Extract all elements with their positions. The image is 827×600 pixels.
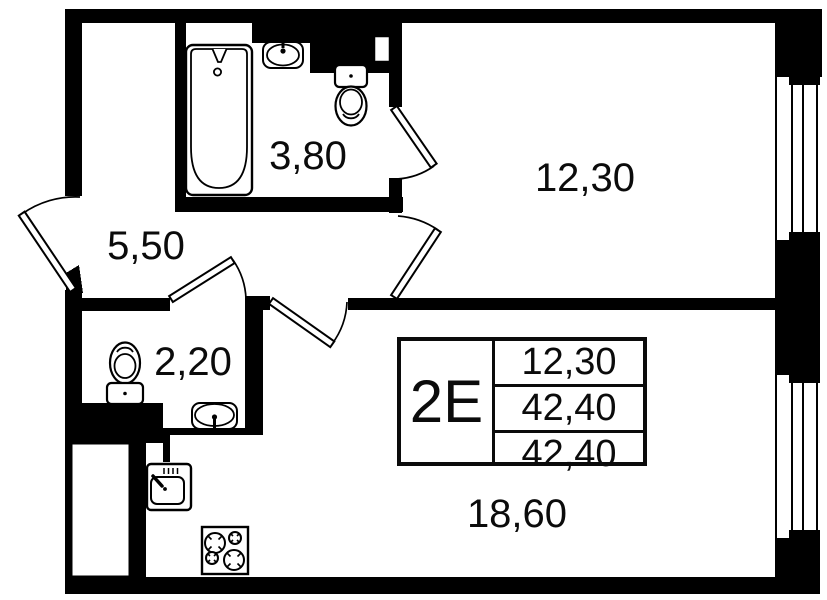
floor-plan-drawing [0, 0, 827, 600]
kitchen-sink-icon [147, 464, 191, 510]
unit-info-table: 2E 12,30 42,40 42,40 [397, 337, 647, 466]
kitchen-shaft-bar [65, 403, 163, 443]
bathroom-right-stub [389, 178, 402, 213]
bedroom-door [391, 216, 441, 299]
kitchen-stub [163, 435, 170, 462]
unit-total-area: 42,40 [495, 430, 643, 476]
bathroom-bottom-wall [175, 197, 403, 212]
bathroom-door [391, 106, 437, 179]
room-divider-wall [348, 298, 777, 310]
unit-stats-column: 12,30 42,40 42,40 [495, 341, 643, 462]
right-wall-bottom [775, 538, 820, 594]
window-bottom [775, 375, 822, 538]
unit-area: 42,40 [495, 384, 643, 430]
left-wall-upper [65, 9, 82, 196]
right-wall-top [775, 9, 822, 77]
kitchen-living-area-label: 18,60 [437, 492, 597, 537]
duct-opening [374, 36, 390, 62]
bathroom-area-label: 3,80 [243, 134, 373, 179]
bathroom-left-wall [175, 23, 186, 212]
bottom-wall [65, 577, 820, 594]
wc-sink-icon [192, 403, 237, 433]
window-top [775, 77, 822, 240]
stove-icon [202, 527, 248, 574]
right-wall-mid [775, 240, 820, 375]
wc-top-wall [82, 298, 170, 311]
bath-toilet-icon [335, 65, 367, 126]
bedroom-area-label: 12,30 [505, 156, 665, 201]
bath-sink-icon [263, 38, 303, 68]
unit-living-area: 12,30 [495, 341, 643, 384]
floor-plan: 3,80 5,50 12,30 2,20 18,60 2E 12,30 42,4… [0, 0, 827, 600]
wc-area-label: 2,20 [128, 340, 258, 385]
unit-type-label: 2E [401, 341, 495, 462]
top-wall [65, 9, 822, 23]
living-room-door [269, 298, 347, 347]
hallway-area-label: 5,50 [81, 224, 211, 269]
ventilation-shaft-icon [71, 443, 130, 577]
